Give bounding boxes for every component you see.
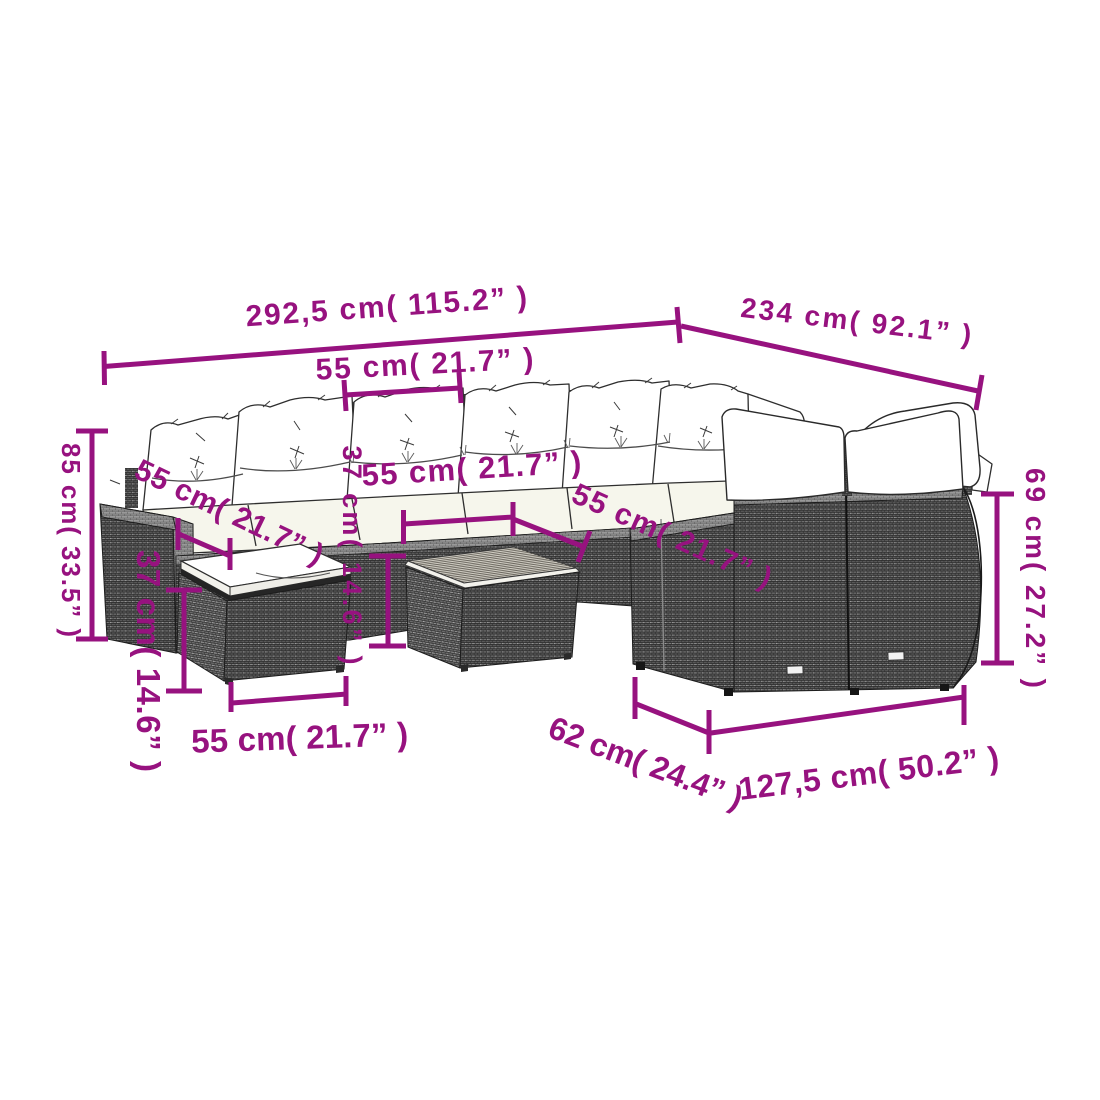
svg-text:69 cm( 27.2” ): 69 cm( 27.2” ) — [1020, 468, 1051, 688]
svg-text:234 cm( 92.1” ): 234 cm( 92.1” ) — [739, 292, 973, 350]
svg-text:62 cm( 24.4” ): 62 cm( 24.4” ) — [544, 709, 748, 816]
svg-text:85 cm( 33.5” ): 85 cm( 33.5” ) — [56, 443, 86, 637]
svg-text:127,5 cm( 50.2” ): 127,5 cm( 50.2” ) — [736, 739, 1000, 807]
svg-text:37 cm( 14.6” ): 37 cm( 14.6” ) — [130, 550, 167, 772]
svg-text:55 cm( 21.7” ): 55 cm( 21.7” ) — [191, 715, 409, 760]
svg-text:37 cm( 14.6” ): 37 cm( 14.6” ) — [337, 446, 367, 665]
svg-text:292,5 cm( 115.2” ): 292,5 cm( 115.2” ) — [245, 281, 529, 334]
